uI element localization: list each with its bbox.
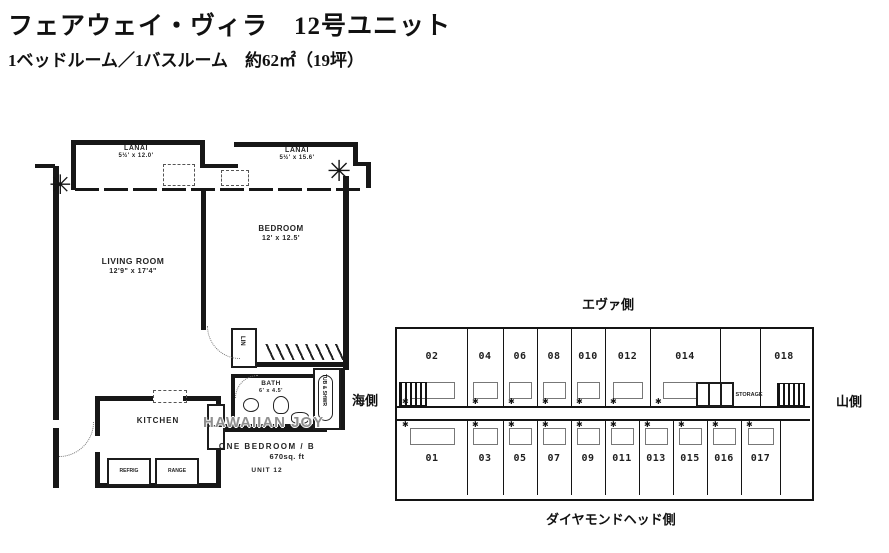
unit-number: 010 [571,351,605,362]
page: フェアウェイ・ヴィラ 12号ユニット 1ベッドルーム／1バスルーム 約62㎡（1… [0,0,889,553]
kitchen-label: KITCHEN [113,416,203,426]
summary-line3: UNIT 12 [185,467,349,475]
summary-line2: 670sq. ft [225,452,349,462]
unit-summary: ONE BEDROOM / B 670sq. ft UNIT 12 [185,442,349,476]
unit-cell: 03 [467,421,504,495]
lanai-right-name: LANAI [257,146,337,155]
lanai-furniture [221,170,249,186]
elevator [720,382,734,407]
tub-label: TUB & SHWR [321,374,326,406]
unit-number: 08 [537,351,571,362]
lanai-right-dim: 5½' x 15.6' [257,155,337,163]
bedroom-name: BEDROOM [231,224,331,234]
unit-number: 03 [467,453,503,464]
wall-segment [95,396,100,436]
unit-number: 05 [503,453,537,464]
wall-segment [71,140,76,190]
unit-number: 016 [707,453,741,464]
unit-number: 012 [605,351,650,362]
door-arc [59,422,94,457]
unit-number: 015 [673,453,707,464]
unit-cell: 015 [673,421,708,495]
unit-number: 013 [639,453,673,464]
corridor-wall [395,406,810,408]
unit-cell: 012 [605,329,651,406]
unit-cell: 08 [537,329,572,406]
door-arc [235,375,258,398]
unit-number: 014 [650,351,720,362]
unit-number: 018 [760,351,808,362]
page-title: フェアウェイ・ヴィラ 12号ユニット [8,6,451,42]
wall-segment [200,164,238,168]
page-subtitle: 1ベッドルーム／1バスルーム 約62㎡（19坪） [8,46,364,71]
wall-segment [53,166,59,420]
wall-segment [201,190,206,330]
unit-number: 09 [571,453,605,464]
direction-label-top: エヴァ側 [582,294,634,313]
watermark-text: HAWAIIAN JOY [203,414,324,431]
unit-cell: 013 [639,421,674,495]
unit-number: 06 [503,351,537,362]
toilet-fixture [273,396,289,414]
unit-cell: 011 [605,421,640,495]
unit-cell: 04 [467,329,504,406]
direction-label-left: 海側 [352,390,378,409]
lanai-left-label: LANAI 5½' x 12.0' [99,144,173,161]
summary-line1: ONE BEDROOM / B [185,442,349,452]
unit-cell: 016 [707,421,742,495]
living-room-name: LIVING ROOM [77,256,189,267]
lanai-right-label: LANAI 5½' x 15.6' [257,146,337,163]
lanai-left-name: LANAI [99,144,173,153]
unit-cell: 01 [397,421,468,495]
wall-segment [35,164,55,168]
end-corridor-cell [780,421,808,495]
unit-number: 01 [397,453,467,464]
unit-number: 07 [537,453,571,464]
wall-segment [231,374,319,378]
lanai-furniture [163,164,195,186]
refrigerator: REFRIG [107,458,151,486]
bedroom-dim: 12' x 12.5' [231,234,331,243]
bedroom-label: BEDROOM 12' x 12.5' [231,224,331,243]
living-room-dim: 12'9" x 17'4" [77,267,189,276]
unit-cell: 010 [571,329,606,406]
unit-number: 04 [467,351,503,362]
unit-cell: 06 [503,329,538,406]
lanai-slider-rail [75,188,363,191]
lanai-left-dim: 5½' x 12.0' [99,153,173,161]
stairs [777,383,805,406]
sink-fixture [243,398,259,412]
unit-cell: 07 [537,421,572,495]
storage-label: STORAGE [733,392,765,399]
unit-floorplan: LIN BATH 6' x 4.5' TUB & SHWR KITCHEN RE… [35,128,375,528]
direction-label-bottom: ダイヤモンドヘッド側 [546,509,676,528]
living-room-label: LIVING ROOM 12'9" x 17'4" [77,256,189,276]
unit-cell: 017 [741,421,781,495]
plant-icon: ✳ [49,170,72,201]
pass-through-counter [153,390,187,403]
wall-segment [95,396,153,401]
refrigerator-label: REFRIG [109,468,149,475]
unit-cell: 09 [571,421,606,495]
wall-segment [253,362,349,367]
closet-hanger-marks [265,344,343,360]
door-arc [207,326,240,359]
unit-number: 017 [741,453,780,464]
unit-number: 011 [605,453,639,464]
wall-segment [366,162,371,188]
unit-number: 02 [397,351,467,362]
unit-cell: 05 [503,421,538,495]
wall-segment [343,176,349,370]
building-floormap: エヴァ側 ダイヤモンドヘッド側 海側 山側 02 04 06 08 010 01… [350,290,889,540]
stairs [399,382,427,406]
direction-label-right: 山側 [836,391,862,410]
